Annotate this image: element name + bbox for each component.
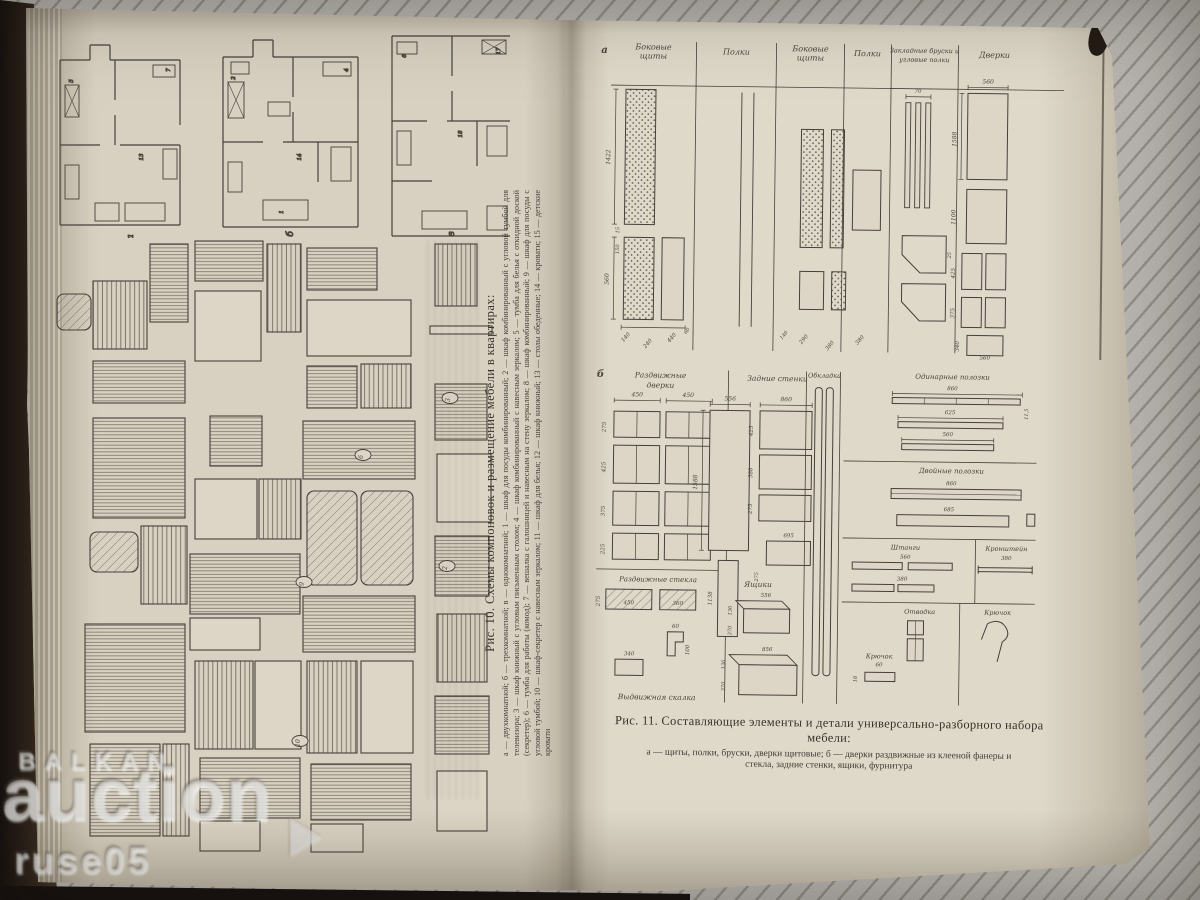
drawing-rect xyxy=(93,418,185,518)
drawing-rect xyxy=(905,103,911,208)
corner-shelf xyxy=(901,284,945,322)
drawing-rect xyxy=(307,300,411,356)
drawing-rect xyxy=(967,93,1008,179)
drawing-rect xyxy=(759,455,811,490)
rail-part xyxy=(667,632,683,656)
drawing-rect xyxy=(435,384,487,440)
drawing-rect xyxy=(665,446,711,485)
drawing-rect xyxy=(397,131,411,165)
dim-label: 560 xyxy=(900,555,911,561)
drawing-rect xyxy=(228,162,242,192)
drawing-rect xyxy=(361,364,411,408)
drawing-rect xyxy=(90,744,160,836)
dim-label: 140 xyxy=(621,331,633,343)
drawing-line xyxy=(841,44,845,352)
section-label: Крючок xyxy=(983,609,1011,617)
drawing-line xyxy=(621,327,685,328)
drawing-rect xyxy=(892,398,1020,406)
item-tag-number: 6 xyxy=(358,455,365,459)
drawing-rect xyxy=(487,206,507,230)
drawing-rect xyxy=(908,563,952,571)
hook-squiggle xyxy=(981,621,1008,662)
drawing-rect xyxy=(195,479,257,539)
column-header: щиты xyxy=(797,53,824,62)
section-label: дверки xyxy=(647,381,675,390)
drawer-top xyxy=(729,655,797,666)
drawing-rect xyxy=(961,297,981,327)
book-photo: 5713а24141б61718в 369210 Рис. 10. Схемы … xyxy=(0,0,1200,900)
drawing-rect xyxy=(717,560,738,636)
drawing-rect xyxy=(422,211,467,229)
plan-number: 18 xyxy=(458,130,464,137)
drawing-rect xyxy=(613,445,659,484)
section-label: Раздвижные xyxy=(634,370,687,380)
drawing-line xyxy=(725,371,729,703)
drawing-rect xyxy=(925,103,931,208)
dim-label: 150 xyxy=(615,244,621,254)
drawing-rect xyxy=(967,335,1003,355)
section-label: Одинарные полозки xyxy=(915,373,990,382)
drawing-rect xyxy=(660,590,696,610)
drawing-rect xyxy=(812,388,823,676)
drawing-line xyxy=(596,569,726,571)
drawing-rect xyxy=(195,241,263,281)
fig11-caption-title2: мебели: xyxy=(594,728,1064,749)
dim-label: 275 xyxy=(602,421,608,433)
plan-number: 2 xyxy=(231,76,237,81)
floor-plan: 61718в xyxy=(392,36,510,237)
dim-label: 240 xyxy=(642,338,654,351)
drawing-rect xyxy=(823,388,834,676)
drawing-rect xyxy=(163,744,189,836)
dim-label: 370 xyxy=(721,681,727,691)
dim-label: 290 xyxy=(798,333,810,346)
fig11-caption-legend: а — щиты, полки, бруски, дверки щитовые;… xyxy=(594,747,1064,763)
dim-label: 60 xyxy=(875,662,883,668)
drawing-rect xyxy=(125,203,165,221)
drawing-line xyxy=(888,44,892,352)
drawing-rect xyxy=(666,412,712,439)
drawing-rect xyxy=(799,271,823,309)
dim-label: 556 xyxy=(761,593,772,599)
drawing-rect xyxy=(739,665,797,696)
drawing-rect xyxy=(1027,514,1035,526)
drawer-top xyxy=(736,601,790,610)
dim-label: 860 xyxy=(780,396,792,403)
drawing-rect xyxy=(907,639,923,661)
plan-number: 5 xyxy=(69,79,75,83)
drawing-rect xyxy=(307,661,357,753)
column-header: щиты xyxy=(640,51,667,60)
drawing-line xyxy=(773,43,777,351)
drawing-line xyxy=(843,461,1036,463)
drawing-rect xyxy=(231,62,249,74)
dim-label: 11,5 xyxy=(1024,409,1030,420)
section-label: Двойные полозки xyxy=(918,467,985,476)
dim-label: 695 xyxy=(783,533,794,539)
dim-label: 685 xyxy=(944,507,955,513)
dim-label: 1138 xyxy=(708,591,714,606)
section-label: Выдвижная скалка xyxy=(617,692,696,702)
drawing-rect xyxy=(612,533,658,560)
section-label: Крючок xyxy=(865,652,893,660)
dim-label: 18 xyxy=(853,676,859,682)
drawing-rect xyxy=(897,515,1009,527)
fig11-caption: Рис. 11. Составляющие элементы и детали … xyxy=(594,713,1065,774)
drawing-rect xyxy=(852,562,902,570)
item-tag-number: 3 xyxy=(445,398,452,402)
drawing-rect xyxy=(759,495,811,522)
drawing-rect xyxy=(665,492,711,527)
drawing-rect xyxy=(800,129,823,247)
drawing-rect xyxy=(435,244,477,306)
drawing-rect xyxy=(852,170,881,230)
fig11-part-a-diagram: аБоковыещитыПолкиБоковыещитыПолкиЗакладн… xyxy=(593,37,1075,363)
dim-label: 360 xyxy=(672,601,683,607)
fig11-part-b-diagram: бРаздвижныедверки450450275425375225Раздв… xyxy=(588,363,1070,713)
drawing-line xyxy=(613,237,614,319)
drawing-rect xyxy=(743,609,789,634)
drawing-rect xyxy=(57,294,91,330)
drawing-rect xyxy=(85,624,185,732)
drawing-rect xyxy=(760,411,812,450)
drawing-rect xyxy=(195,291,261,361)
book-gutter xyxy=(525,0,610,900)
drawing-rect xyxy=(902,444,994,451)
drawing-line xyxy=(978,568,1032,569)
drawing-rect xyxy=(865,672,895,681)
item-tag-number: 9 xyxy=(299,582,306,586)
drawing-rect xyxy=(435,696,489,754)
drawing-line xyxy=(902,440,994,441)
drawing-rect xyxy=(623,237,654,319)
right-page xyxy=(565,0,1150,900)
drawing-rect xyxy=(263,200,308,220)
drawing-line xyxy=(611,85,1064,91)
drawing-rect xyxy=(985,298,1005,328)
dim-label: 625 xyxy=(945,410,956,416)
drawing-line xyxy=(955,45,959,353)
drawing-line xyxy=(614,89,616,224)
drawing-rect xyxy=(831,272,845,310)
dim-label: 560 xyxy=(979,356,990,362)
drawing-rect xyxy=(830,130,844,248)
dim-label: 425 xyxy=(749,425,755,437)
drawing-line xyxy=(892,394,1022,396)
dim-label: 225 xyxy=(600,543,606,555)
drawing-rect xyxy=(614,411,660,438)
drawing-rect xyxy=(200,821,260,851)
drawing-rect xyxy=(163,149,177,179)
column-header: угловые полки xyxy=(898,56,950,65)
dim-label: 560 xyxy=(982,79,994,86)
column-header: Полки xyxy=(722,47,750,56)
drawing-rect xyxy=(606,589,652,610)
drawing-rect xyxy=(150,244,188,322)
drawing-rect xyxy=(65,165,79,199)
plan-number: 1 xyxy=(279,210,285,214)
drawing-rect xyxy=(259,479,301,539)
drawing-rect xyxy=(852,584,894,592)
drawing-rect xyxy=(487,126,507,156)
dim-label: 340 xyxy=(955,341,961,352)
drawing-line xyxy=(666,401,712,402)
dim-label: 388 xyxy=(748,467,754,478)
dim-label: 136 xyxy=(728,605,734,615)
dim-label: 375 xyxy=(601,505,607,516)
drawing-rect xyxy=(624,89,656,224)
dim-label: 15 xyxy=(615,227,621,233)
section-label: Раздвижные стекла xyxy=(618,575,697,584)
fig10-furniture-elevations: 369210 xyxy=(45,236,515,888)
drawing-line xyxy=(978,572,1032,573)
drawing-rect xyxy=(307,248,377,290)
plan-number: 14 xyxy=(297,153,303,160)
section-label: Кронштейн xyxy=(984,545,1027,554)
drawing-rect xyxy=(307,366,357,408)
fig11-caption-legend2: стекла, задние стенки, ящики, фурнитура xyxy=(594,758,1064,774)
drawing-rect xyxy=(437,614,487,682)
drawing-rect xyxy=(200,758,300,818)
drawing-rect xyxy=(311,764,411,820)
dim-label: 136 xyxy=(721,659,727,669)
dim-label: 60 xyxy=(672,624,680,630)
dim-label: 375 xyxy=(950,307,956,318)
drawing-rect xyxy=(437,771,487,831)
floor-plan: 5713а xyxy=(60,45,180,238)
drawing-line xyxy=(843,538,1036,540)
drawing-rect xyxy=(891,489,1021,501)
dim-label: 450 xyxy=(682,392,695,399)
section-label: Обкладка xyxy=(808,371,841,379)
dim-label: 1100 xyxy=(950,209,957,225)
plan-number: 17 xyxy=(496,47,502,54)
drawing-rect xyxy=(766,541,810,566)
drawing-line xyxy=(614,400,660,401)
drawing-rect xyxy=(898,422,1003,429)
section-label: Отводка xyxy=(904,608,935,616)
dim-label: 1588 xyxy=(951,131,958,147)
drawing-rect xyxy=(430,326,492,334)
plan-number: 13 xyxy=(139,153,145,160)
drawing-rect xyxy=(90,532,138,572)
dim-label: 440 xyxy=(666,332,678,345)
fig10-floor-plans: 5713а24141б61718в xyxy=(40,0,510,238)
corner-shelf xyxy=(902,236,946,274)
dim-label: 380 xyxy=(855,334,867,346)
dim-label: 60 xyxy=(683,326,692,335)
drawing-rect xyxy=(613,491,659,526)
dim-label: 1588 xyxy=(692,474,699,490)
floor-plan: 24141б xyxy=(223,40,358,237)
drawing-line xyxy=(961,93,962,179)
section-label: Задние стенки xyxy=(747,374,808,384)
column-header: Полки xyxy=(853,49,881,58)
dim-label: 100 xyxy=(685,644,691,655)
drawing-line xyxy=(837,372,841,704)
book-pages: 5713а24141б61718в 369210 Рис. 10. Схемы … xyxy=(0,0,1200,900)
drawing-rect xyxy=(615,659,643,675)
drawing-rect xyxy=(303,596,415,652)
column-header: Дверки xyxy=(978,51,1010,60)
dim-label: 560 xyxy=(604,273,611,285)
drawing-rect xyxy=(708,410,750,550)
plan-number: 7 xyxy=(166,68,172,72)
drawing-rect xyxy=(907,621,923,635)
drawing-rect xyxy=(190,554,300,614)
drawing-rect xyxy=(361,661,413,753)
dim-label: 556 xyxy=(724,395,736,402)
drawing-rect xyxy=(962,253,982,289)
dim-label: 860 xyxy=(947,386,958,392)
drawing-rect xyxy=(267,244,301,332)
drawing-line xyxy=(891,494,1021,496)
drawing-rect xyxy=(95,203,119,221)
drawing-line xyxy=(701,410,703,550)
dim-label: 860 xyxy=(946,481,957,487)
dim-label: 275 xyxy=(596,595,602,607)
dim-label: 380 xyxy=(824,340,836,352)
part-label: а xyxy=(601,45,608,56)
drawing-rect xyxy=(661,238,684,320)
drawing-line xyxy=(842,602,1035,604)
dim-label: 275 xyxy=(748,503,754,515)
dim-label: 450 xyxy=(622,600,634,606)
column-header: Боковые xyxy=(791,44,829,53)
dim-label: 856 xyxy=(762,647,773,653)
dim-label: 70 xyxy=(914,89,922,95)
dim-label: 370 xyxy=(727,625,733,635)
item-tag-number: 10 xyxy=(295,739,302,747)
drawing-rect xyxy=(93,361,185,403)
dim-label: 25 xyxy=(947,252,953,259)
drawing-line xyxy=(898,418,1003,419)
dim-label: 275 xyxy=(754,572,760,583)
item-tag-number: 2 xyxy=(442,566,449,571)
drawing-rect xyxy=(210,416,262,466)
dim-label: 380 xyxy=(897,577,908,583)
drawing-line xyxy=(959,603,960,705)
right-page-edge xyxy=(1099,30,1104,360)
drawing-rect xyxy=(664,534,710,561)
drawing-rect xyxy=(268,102,290,116)
drawing-rect xyxy=(966,189,1007,243)
dim-label: 380 xyxy=(1001,556,1012,562)
plan-number: 6 xyxy=(402,54,408,58)
drawing-rect xyxy=(255,661,301,749)
drawing-rect xyxy=(986,254,1006,290)
part-label: б xyxy=(597,369,604,380)
drawing-line xyxy=(760,405,812,406)
dim-label: 560 xyxy=(943,432,954,438)
column-header: Закладные бруски и xyxy=(890,46,959,55)
section-label: Ящики xyxy=(743,580,772,589)
drawing-rect xyxy=(141,526,187,604)
plan-number: 4 xyxy=(344,68,350,73)
drawing-rect xyxy=(397,42,417,54)
drawing-line xyxy=(975,540,976,604)
drawing-rect xyxy=(437,454,491,522)
section-label: Штанги xyxy=(890,543,920,551)
drawing-line xyxy=(739,93,742,327)
drawing-rect xyxy=(307,491,357,585)
drawing-rect xyxy=(915,103,921,208)
drawing-rect xyxy=(898,585,934,592)
watermark-arrow-icon xyxy=(290,818,322,856)
dim-label: 340 xyxy=(624,651,635,657)
drawing-line xyxy=(693,42,697,350)
dim-label: 140 xyxy=(779,329,790,341)
column-header: Боковые xyxy=(634,42,672,51)
dim-label: 450 xyxy=(631,391,644,398)
drawing-rect xyxy=(93,281,147,349)
drawing-rect xyxy=(331,147,351,181)
drawing-rect xyxy=(190,618,260,650)
dim-label: 1422 xyxy=(605,149,612,165)
drawing-rect xyxy=(195,661,253,749)
drawing-rect xyxy=(361,491,413,585)
drawing-line xyxy=(751,93,754,327)
drawing-line xyxy=(803,371,807,703)
dim-label: 425 xyxy=(951,267,957,279)
dim-label: 425 xyxy=(601,461,607,473)
fig11-caption-title: Рис. 11. Составляющие элементы и детали … xyxy=(594,713,1064,734)
